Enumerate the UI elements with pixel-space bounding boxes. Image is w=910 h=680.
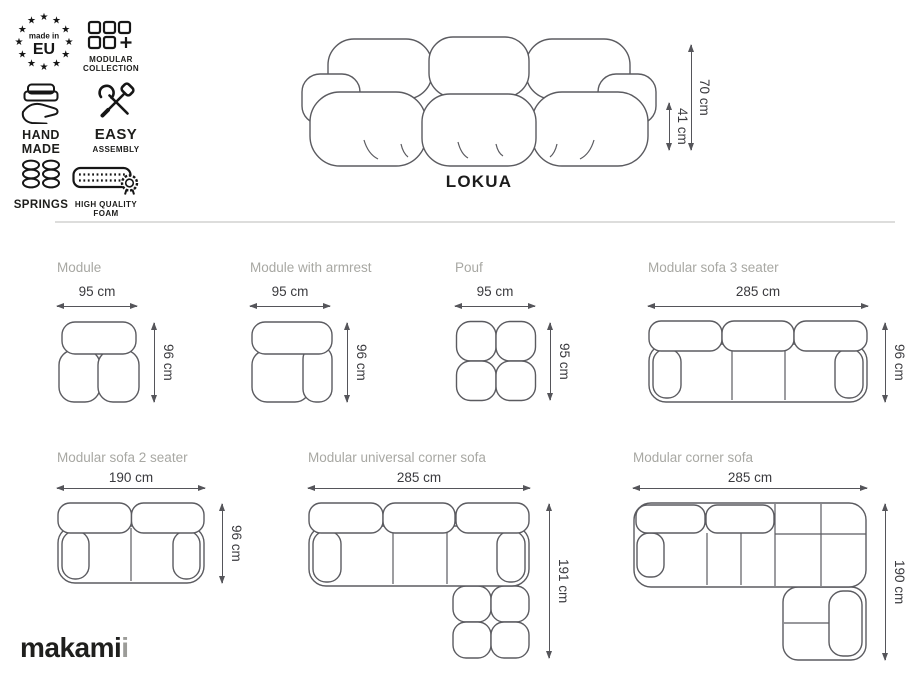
hand-made-icon: [18, 82, 64, 124]
figure-module-armrest: Module with armrest 95 cm 96 cm: [250, 260, 370, 435]
figure-sofa-3-seater: Modular sofa 3 seater 285 cm 96 cm: [648, 260, 908, 435]
width-label: 285 cm: [648, 284, 868, 299]
figure-title: Modular sofa 3 seater: [648, 260, 779, 275]
width-arrow: [57, 306, 137, 307]
depth-arrow: [347, 323, 348, 402]
hand-made-line2: MADE: [10, 142, 72, 156]
modular-label-line2: COLLECTION: [80, 64, 142, 73]
depth-arrow: [154, 323, 155, 402]
springs-icon: [19, 158, 63, 194]
svg-text:★: ★: [18, 50, 27, 61]
depth-label: 191 cm: [556, 502, 571, 660]
svg-text:★: ★: [65, 37, 74, 48]
pouf-top-view-drawing: [455, 320, 537, 402]
easy-assembly-icon: [96, 82, 136, 122]
made-in-label: made in: [29, 32, 59, 41]
section-divider: [55, 221, 895, 223]
depth-label: 95 cm: [557, 320, 572, 402]
made-in-eu-icon: ★★★ ★★★ ★★★ ★★★ made in EU: [12, 10, 76, 74]
depth-label: 96 cm: [354, 320, 369, 404]
assembly-label: ASSEMBLY: [84, 145, 148, 154]
total-height-label: 70 cm: [697, 45, 712, 150]
width-arrow: [633, 488, 867, 489]
width-label: 95 cm: [250, 284, 330, 299]
width-arrow: [250, 306, 330, 307]
depth-arrow: [222, 504, 223, 583]
logo-prefix: makam: [20, 632, 114, 663]
width-label: 285 cm: [633, 470, 867, 485]
width-arrow: [648, 306, 868, 307]
sofa-3-seater-top-view-drawing: [648, 320, 868, 404]
width-label: 95 cm: [455, 284, 535, 299]
svg-text:★: ★: [27, 59, 36, 70]
sofa-front-view-drawing: [298, 36, 660, 170]
badge-springs: SPRINGS: [10, 158, 72, 212]
svg-text:★: ★: [61, 25, 70, 36]
figure-corner-sofa: Modular corner sofa 285 cm 190 cm: [633, 450, 908, 670]
foam-line1: HIGH QUALITY: [70, 200, 142, 209]
svg-text:★: ★: [40, 62, 49, 73]
eu-label: EU: [33, 41, 55, 58]
universal-corner-sofa-top-view-drawing: [308, 502, 530, 660]
modular-label-line1: MODULAR: [80, 55, 142, 64]
figure-universal-corner-sofa: Modular universal corner sofa 285 cm 191…: [308, 450, 578, 670]
svg-text:★: ★: [52, 15, 61, 26]
brand-logo: makamii: [20, 632, 129, 664]
badge-made-in-eu: ★★★ ★★★ ★★★ ★★★ made in EU: [12, 10, 76, 74]
figure-title: Modular sofa 2 seater: [57, 450, 188, 465]
badge-high-quality-foam: HIGH QUALITY FOAM: [70, 164, 142, 218]
total-height-arrow: [691, 45, 692, 150]
corner-sofa-top-view-drawing: [633, 502, 867, 662]
svg-text:★: ★: [40, 12, 49, 23]
svg-text:★: ★: [15, 37, 24, 48]
depth-arrow: [549, 504, 550, 658]
width-arrow: [455, 306, 535, 307]
width-label: 285 cm: [308, 470, 530, 485]
badge-hand-made: HAND MADE: [10, 82, 72, 157]
svg-text:★: ★: [61, 50, 70, 61]
high-quality-foam-icon: [72, 164, 140, 196]
figure-title: Module: [57, 260, 101, 275]
width-arrow: [57, 488, 205, 489]
module-top-view-drawing: [57, 320, 141, 404]
width-label: 190 cm: [57, 470, 205, 485]
figure-pouf: Pouf 95 cm 95 cm: [455, 260, 575, 435]
figure-title: Modular corner sofa: [633, 450, 753, 465]
easy-label: EASY: [84, 126, 148, 143]
svg-text:★: ★: [52, 59, 61, 70]
figure-title: Pouf: [455, 260, 483, 275]
sofa-2-seater-top-view-drawing: [57, 502, 205, 585]
depth-label: 190 cm: [892, 502, 907, 662]
springs-label: SPRINGS: [10, 199, 72, 212]
figure-title: Modular universal corner sofa: [308, 450, 486, 465]
module-armrest-top-view-drawing: [250, 320, 334, 404]
hand-made-line1: HAND: [10, 128, 72, 142]
svg-text:★: ★: [27, 15, 36, 26]
figure-title: Module with armrest: [250, 260, 372, 275]
depth-arrow: [885, 504, 886, 660]
foam-line2: FOAM: [70, 209, 142, 218]
figure-module: Module 95 cm 96 cm: [57, 260, 177, 435]
depth-label: 96 cm: [161, 320, 176, 404]
depth-arrow: [885, 323, 886, 402]
svg-text:★: ★: [18, 25, 27, 36]
badge-easy-assembly: EASY ASSEMBLY: [84, 82, 148, 154]
logo-i-gray: i: [121, 632, 128, 663]
modular-collection-icon: [87, 20, 135, 50]
width-label: 95 cm: [57, 284, 137, 299]
width-arrow: [308, 488, 530, 489]
product-name: LOKUA: [298, 172, 660, 192]
seat-height-arrow: [669, 103, 670, 150]
depth-label: 96 cm: [892, 320, 907, 404]
depth-label: 96 cm: [229, 502, 244, 585]
badge-modular-collection: MODULAR COLLECTION: [80, 20, 142, 73]
depth-arrow: [550, 323, 551, 400]
product-dimension-sheet: ★★★ ★★★ ★★★ ★★★ made in EU MODULAR COLLE…: [0, 0, 910, 680]
